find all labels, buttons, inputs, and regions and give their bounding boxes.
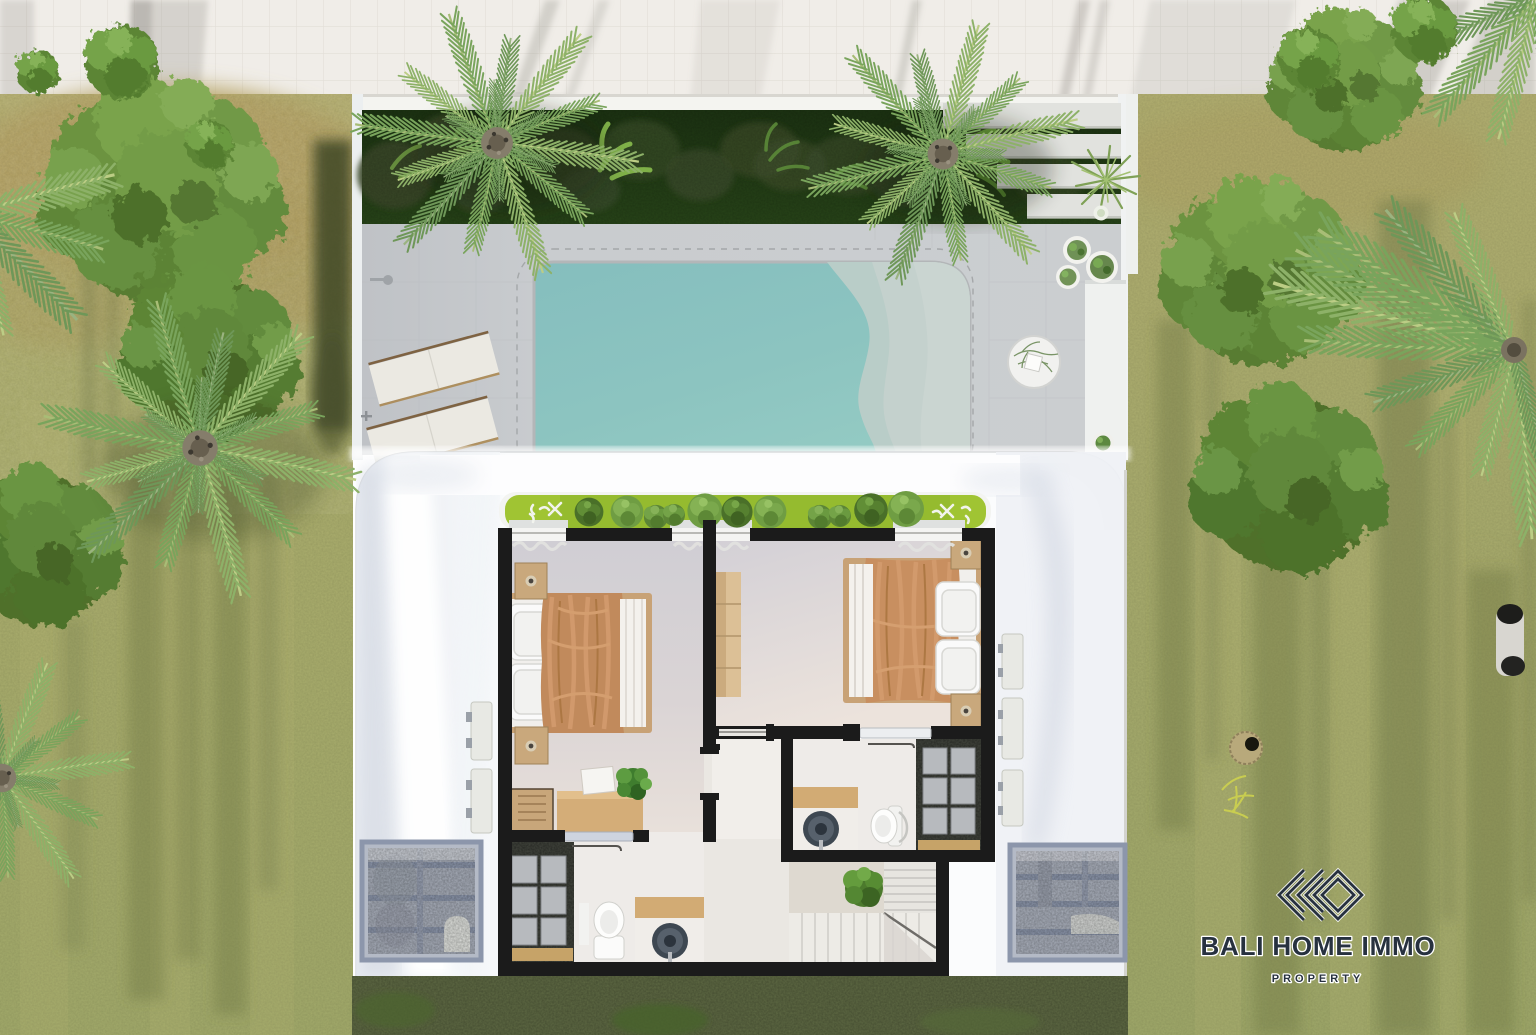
svg-text:BALI HOME IMMO: BALI HOME IMMO [1200,931,1435,961]
svg-text:PROPERTY: PROPERTY [1272,973,1365,985]
